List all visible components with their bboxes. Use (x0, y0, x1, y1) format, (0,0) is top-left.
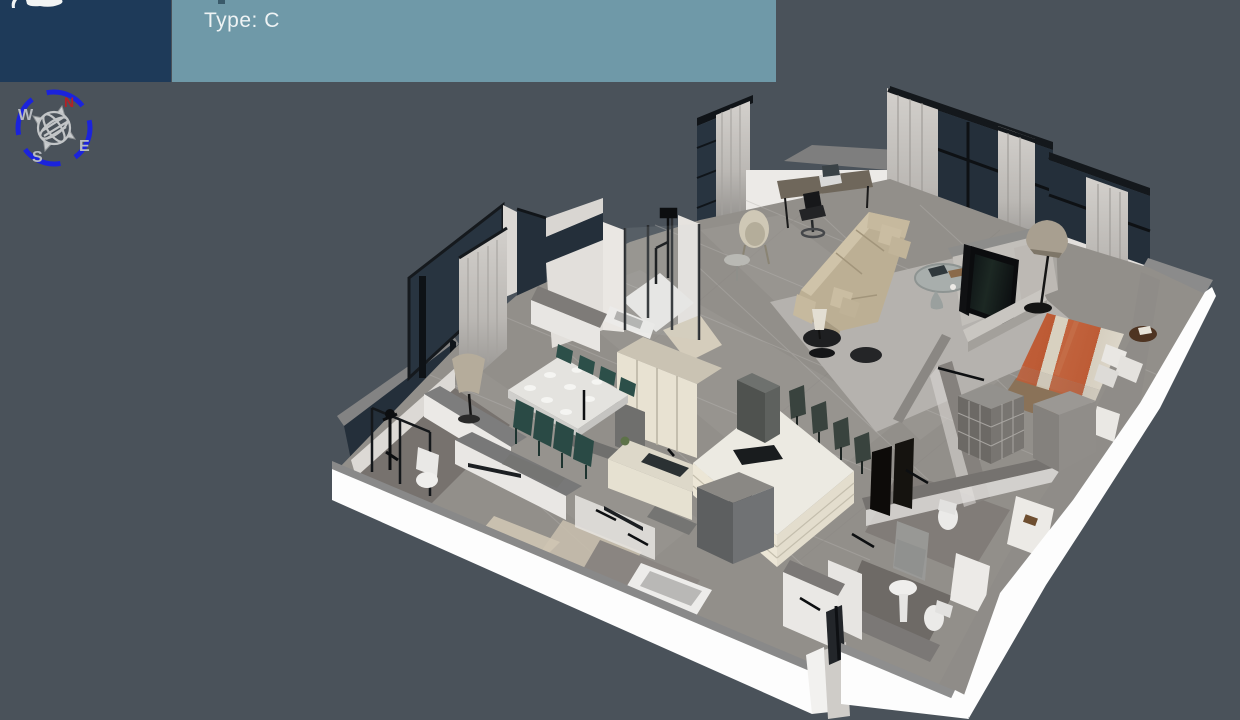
svg-text:Type: C: Type: C (204, 9, 280, 32)
svg-text:E: E (79, 138, 90, 155)
svg-text:S: S (32, 149, 43, 166)
svg-text:W: W (18, 107, 34, 124)
svg-text:N: N (64, 94, 74, 110)
